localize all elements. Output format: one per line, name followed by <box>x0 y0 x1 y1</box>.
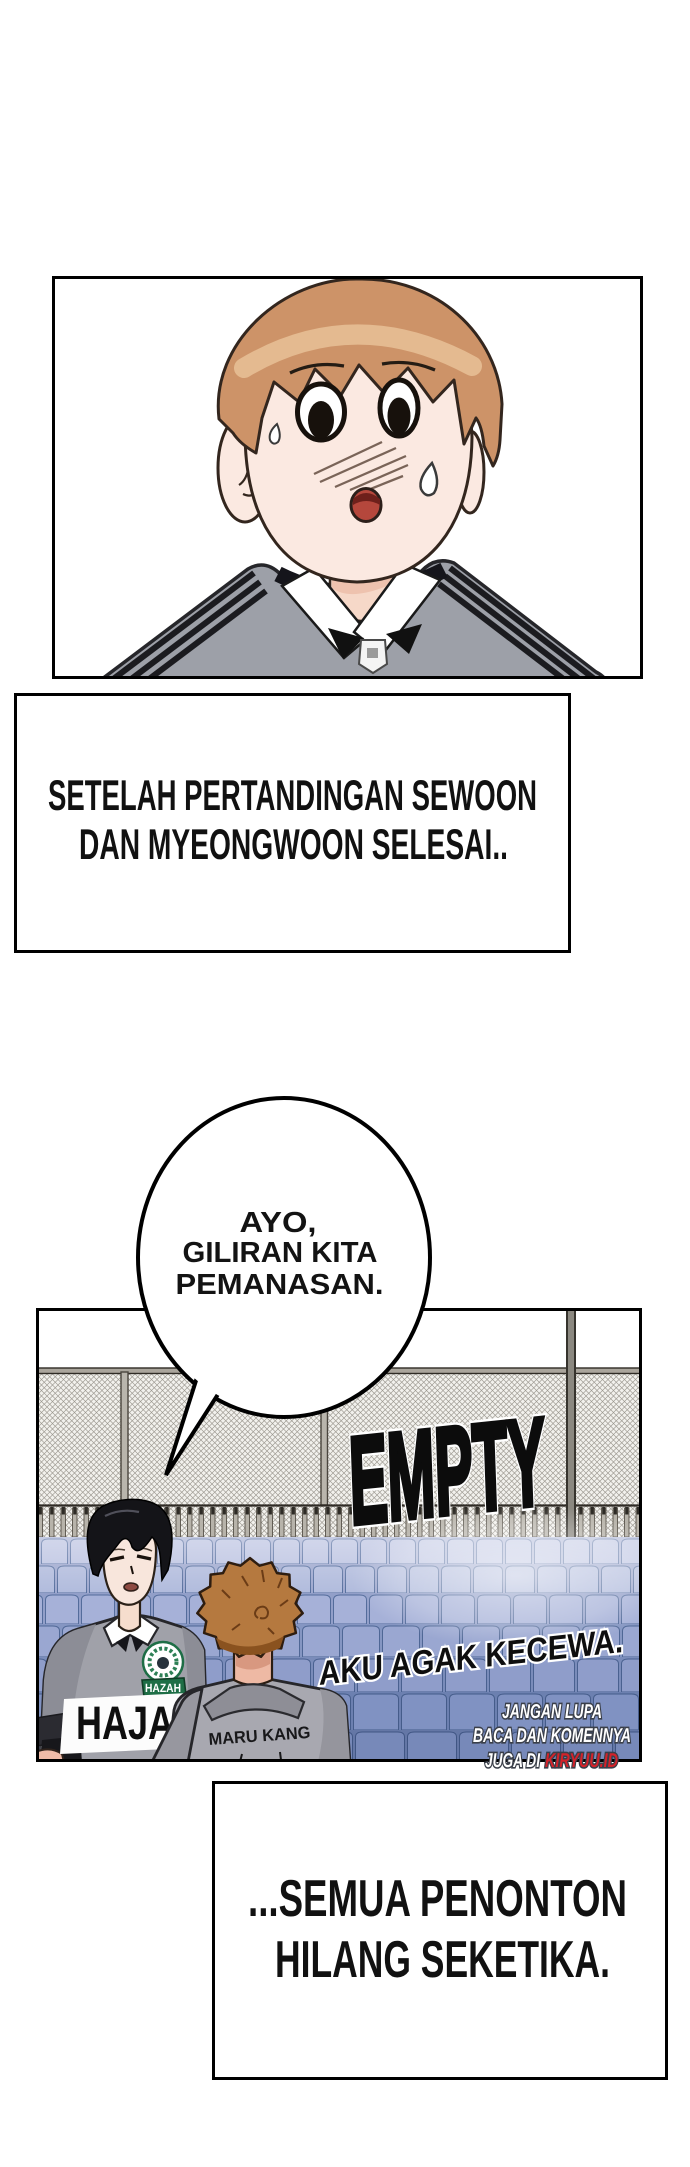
svg-text:JANGAN LUPA: JANGAN LUPA <box>502 1701 602 1723</box>
svg-text:HAJA: HAJA <box>76 1696 174 1749</box>
svg-text:GILIRAN KITA: GILIRAN KITA <box>183 1237 378 1269</box>
svg-text:AYO,: AYO, <box>240 1207 317 1239</box>
svg-text:HAZAH: HAZAH <box>145 1681 181 1695</box>
svg-text:HILANG SEKETIKA.: HILANG SEKETIKA. <box>275 1931 610 1989</box>
svg-text:PEMANASAN.: PEMANASAN. <box>176 1269 384 1301</box>
svg-text:JUGA DI: JUGA DI <box>485 1750 540 1772</box>
svg-text:KIRYUU.ID: KIRYUU.ID <box>545 1750 618 1772</box>
svg-text:...SEMUA PENONTON: ...SEMUA PENONTON <box>248 1870 627 1928</box>
svg-text:BACA DAN KOMENNYA: BACA DAN KOMENNYA <box>473 1725 631 1747</box>
svg-text:SETELAH PERTANDINGAN SEWOON: SETELAH PERTANDINGAN SEWOON <box>48 772 537 820</box>
svg-text:DAN MYEONGWOON SELESAI..: DAN MYEONGWOON SELESAI.. <box>79 821 508 869</box>
